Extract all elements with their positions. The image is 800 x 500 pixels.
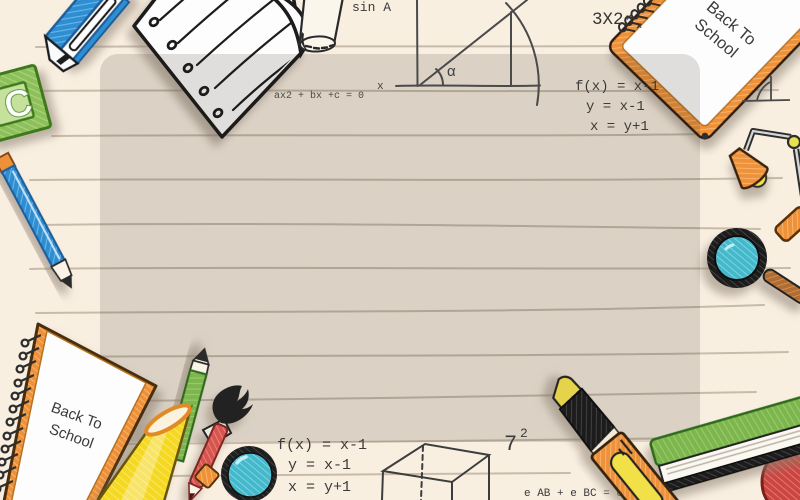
svg-text:f(x) = x-1: f(x) = x-1 — [575, 79, 659, 95]
svg-text:7: 7 — [504, 432, 517, 457]
svg-text:2: 2 — [520, 426, 528, 441]
svg-text:f(x) = x-1: f(x) = x-1 — [277, 437, 367, 454]
svg-text:x = y+1: x = y+1 — [288, 479, 351, 496]
svg-text:α: α — [447, 63, 456, 80]
svg-text:3X2: 3X2 — [592, 10, 624, 30]
svg-text:sin A: sin A — [352, 0, 391, 15]
svg-text:ax2 + bx +c = 0: ax2 + bx +c = 0 — [274, 90, 364, 102]
svg-text:y = x-1: y = x-1 — [288, 457, 351, 474]
svg-text:x = y+1: x = y+1 — [590, 119, 649, 135]
svg-text:x: x — [377, 81, 384, 93]
svg-text:y = x-1: y = x-1 — [586, 99, 645, 115]
